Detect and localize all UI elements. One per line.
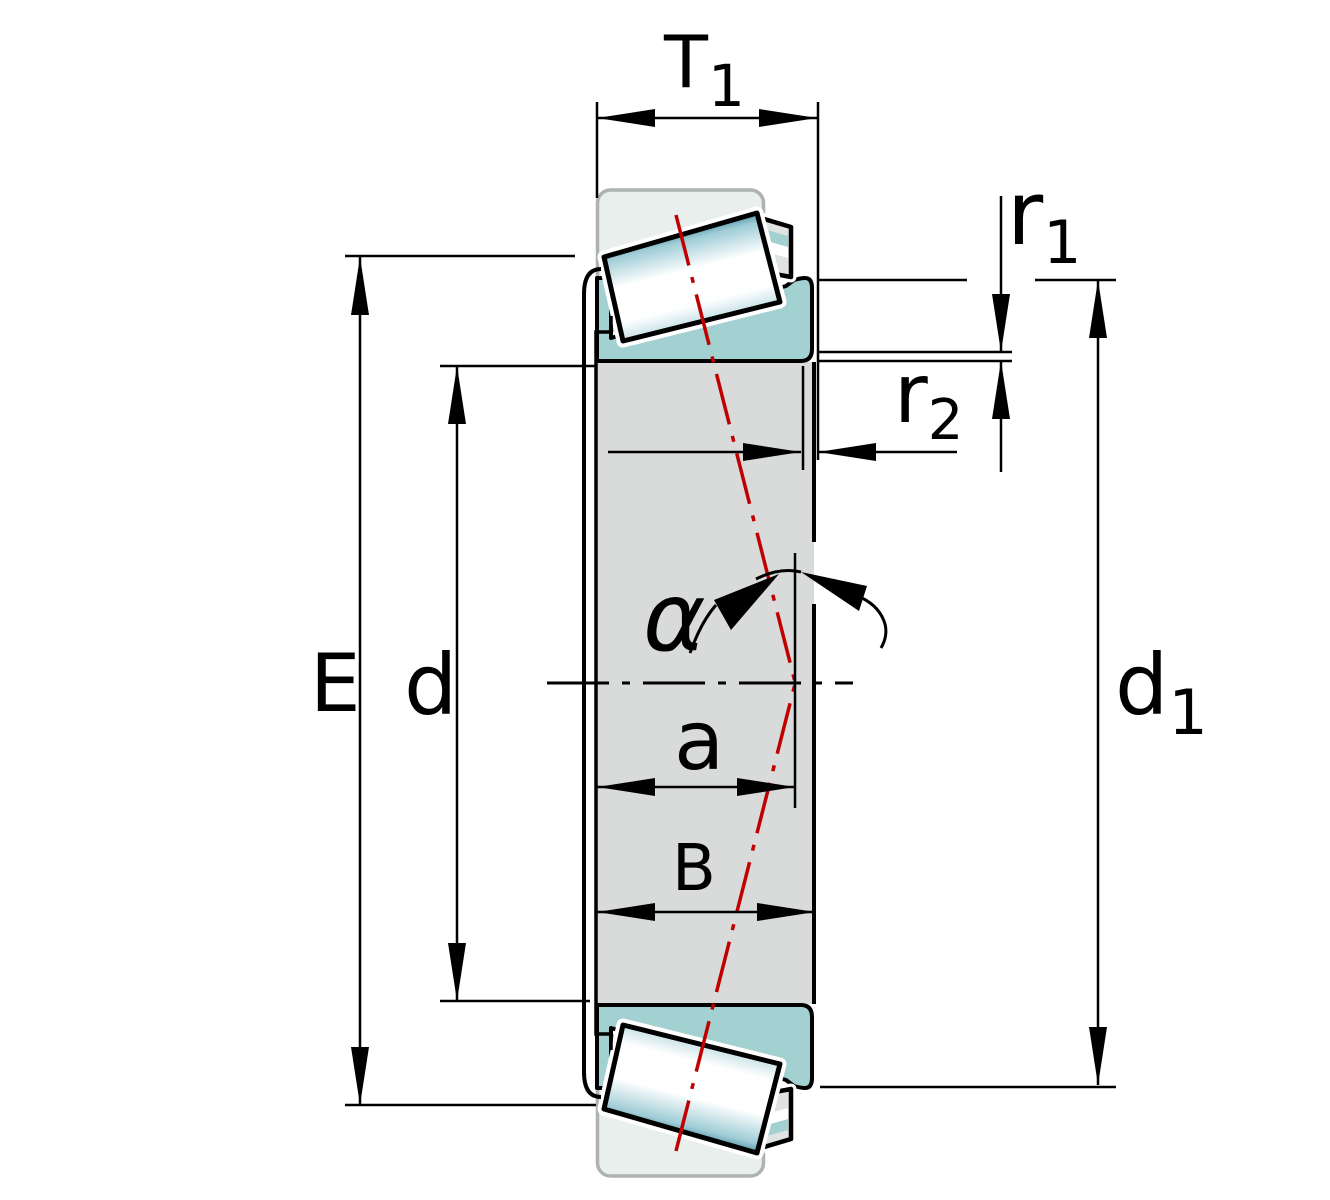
label-r1: r1 xyxy=(1007,162,1081,278)
bearing-diagram-page: T1 r1 r2 E d d1 α a B xyxy=(0,0,1330,1200)
dim-E xyxy=(345,256,596,1105)
label-T1: T1 xyxy=(663,20,745,120)
dim-d1 xyxy=(818,280,1116,1087)
label-a: a xyxy=(674,694,724,789)
label-d1: d1 xyxy=(1115,636,1208,749)
bearing-diagram: T1 r1 r2 E d d1 α a B xyxy=(0,0,1330,1200)
label-d: d xyxy=(404,636,457,734)
label-r2: r2 xyxy=(894,347,963,453)
label-alpha: α xyxy=(643,563,706,673)
label-B: B xyxy=(672,832,716,906)
label-E: E xyxy=(310,637,361,730)
